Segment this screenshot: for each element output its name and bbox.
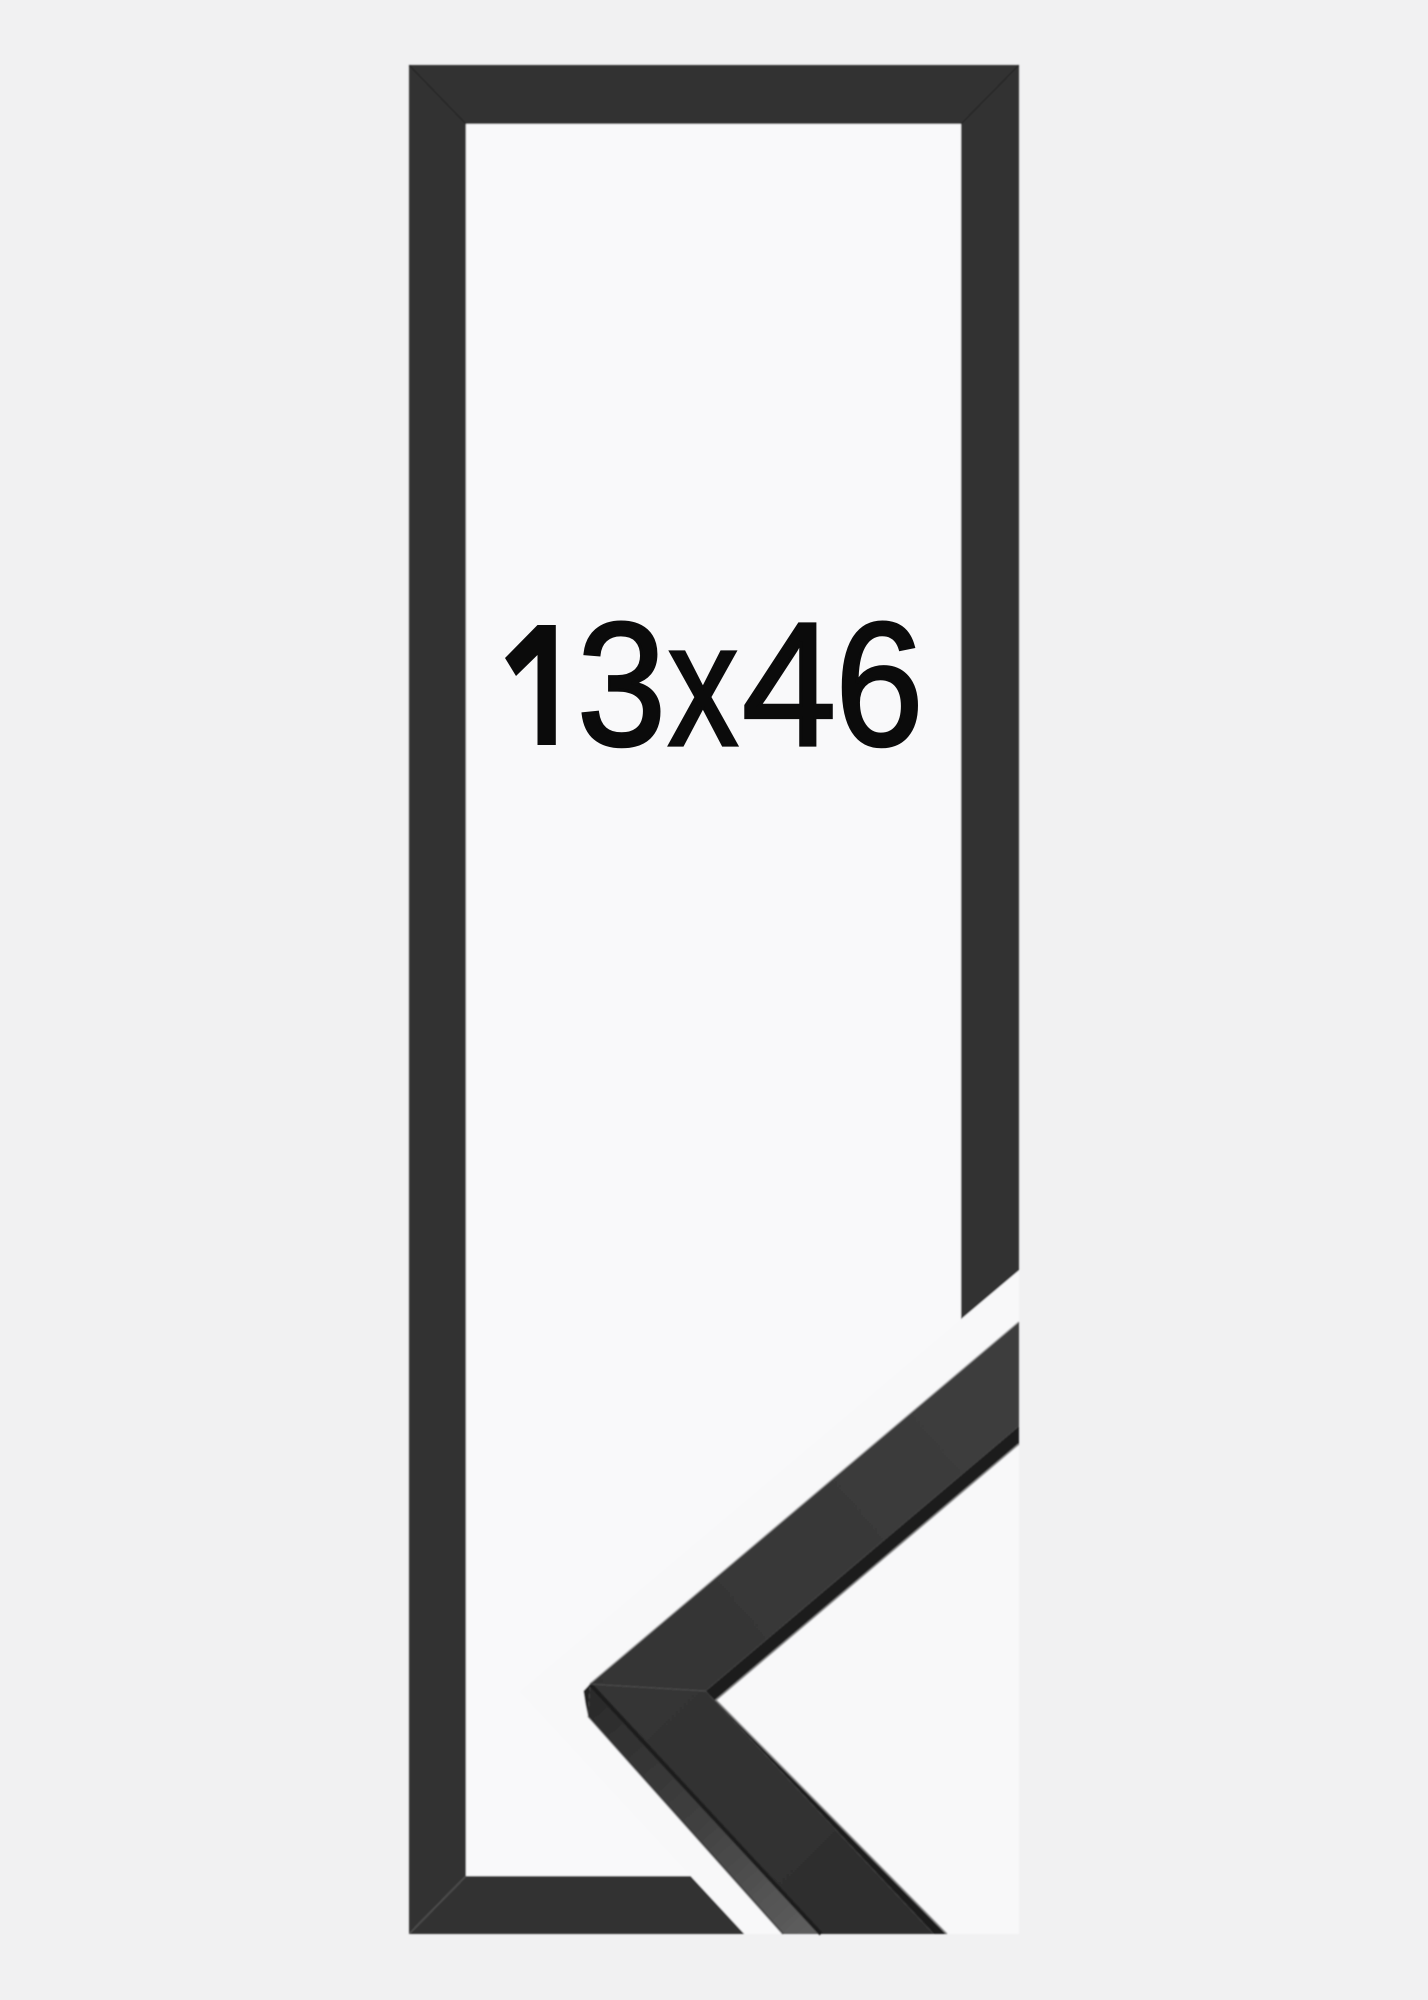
svg-text:x: x xyxy=(668,586,738,783)
svg-text:4: 4 xyxy=(742,586,836,783)
svg-text:3: 3 xyxy=(577,586,666,783)
svg-text:6: 6 xyxy=(835,585,923,782)
